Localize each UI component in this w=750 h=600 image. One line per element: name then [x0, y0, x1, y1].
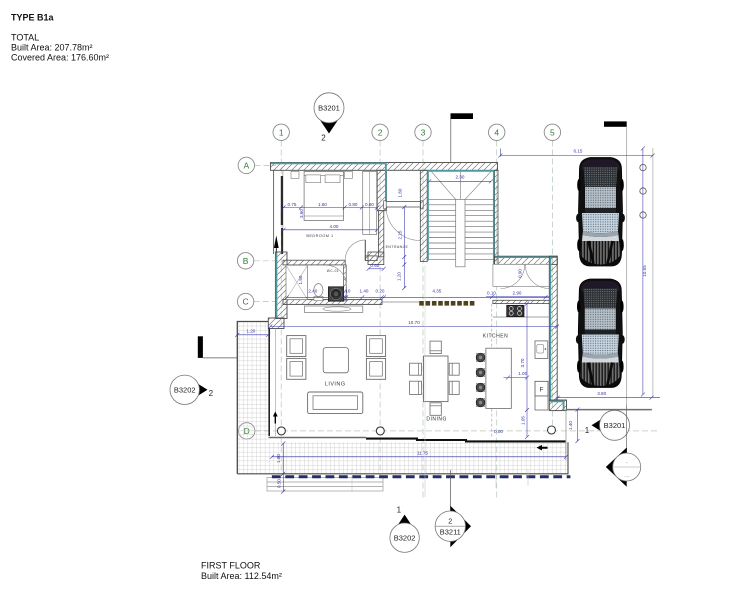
svg-text:0.20: 0.20: [376, 288, 385, 293]
svg-text:1.05: 1.05: [521, 416, 526, 425]
svg-text:1: 1: [397, 506, 402, 515]
svg-text:2: 2: [448, 517, 452, 526]
svg-text:3.70: 3.70: [520, 358, 525, 367]
svg-text:5: 5: [550, 127, 555, 137]
svg-text:2: 2: [209, 389, 214, 398]
svg-text:3: 3: [421, 127, 426, 137]
svg-text:BEDROOM 1: BEDROOM 1: [306, 234, 333, 238]
svg-text:3.80: 3.80: [597, 391, 606, 396]
svg-text:1.50: 1.50: [298, 275, 303, 284]
svg-text:B3202: B3202: [394, 534, 416, 543]
svg-text:TOTAL: TOTAL: [11, 33, 39, 43]
svg-text:WC-01: WC-01: [327, 269, 339, 273]
svg-text:2: 2: [378, 127, 383, 137]
svg-text:2.30: 2.30: [456, 174, 465, 179]
svg-text:A: A: [243, 160, 249, 170]
svg-text:C: C: [243, 297, 249, 307]
svg-text:2.40: 2.40: [308, 288, 317, 293]
svg-text:B3211: B3211: [440, 528, 461, 537]
svg-text:TYPE B1a: TYPE B1a: [11, 13, 55, 23]
svg-text:B3201: B3201: [318, 104, 340, 113]
svg-text:B: B: [243, 256, 249, 266]
svg-text:Built Area: 207.78m²: Built Area: 207.78m²: [11, 43, 93, 53]
svg-text:1.20: 1.20: [397, 272, 402, 281]
svg-text:FIRST FLOOR: FIRST FLOOR: [201, 561, 261, 571]
svg-text:0.60: 0.60: [365, 202, 374, 207]
svg-text:LIVING: LIVING: [325, 382, 346, 388]
svg-text:DINING: DINING: [426, 417, 447, 423]
svg-text:11.75: 11.75: [417, 450, 429, 455]
svg-text:ENTRANCE: ENTRANCE: [386, 245, 409, 249]
svg-text:F: F: [540, 387, 544, 394]
svg-text:4.35: 4.35: [432, 288, 441, 293]
svg-text:1.40: 1.40: [568, 421, 573, 430]
svg-text:B3202: B3202: [174, 386, 196, 395]
svg-text:10.70: 10.70: [408, 320, 420, 325]
svg-text:2.15: 2.15: [398, 230, 403, 239]
svg-text:1.60: 1.60: [398, 188, 403, 197]
svg-text:Built Area: 112.54m²: Built Area: 112.54m²: [201, 571, 282, 581]
svg-text:....: ....: [624, 473, 629, 478]
svg-text:0.60: 0.60: [370, 263, 379, 268]
svg-text:0.10: 0.10: [342, 288, 351, 293]
svg-text:1.20: 1.20: [246, 328, 255, 333]
svg-text:1.60: 1.60: [318, 202, 327, 207]
svg-text:4.00: 4.00: [330, 224, 339, 229]
svg-text:4: 4: [494, 127, 499, 137]
svg-text:0.80: 0.80: [349, 202, 358, 207]
svg-text:0.00: 0.00: [494, 429, 503, 434]
svg-text:1: 1: [279, 127, 284, 137]
svg-text:0.10: 0.10: [487, 291, 496, 296]
svg-text:3.60: 3.60: [299, 209, 304, 218]
svg-text:10.55: 10.55: [642, 265, 647, 277]
svg-text:B3201: B3201: [604, 421, 626, 430]
svg-text:KITCHEN: KITCHEN: [483, 334, 508, 340]
svg-text:1.40: 1.40: [360, 288, 369, 293]
svg-text:1.00: 1.00: [518, 371, 527, 376]
svg-text:6.15: 6.15: [574, 149, 583, 154]
svg-text:2: 2: [321, 134, 326, 143]
svg-text:1.80: 1.80: [276, 454, 281, 463]
svg-text:1: 1: [585, 426, 590, 435]
svg-text:2.90: 2.90: [513, 291, 522, 296]
svg-text:0.75: 0.75: [288, 202, 297, 207]
svg-text:0.90: 0.90: [518, 269, 523, 278]
svg-text:0.50: 0.50: [276, 479, 281, 488]
svg-text:Covered Area: 176.60m²: Covered Area: 176.60m²: [11, 53, 109, 63]
